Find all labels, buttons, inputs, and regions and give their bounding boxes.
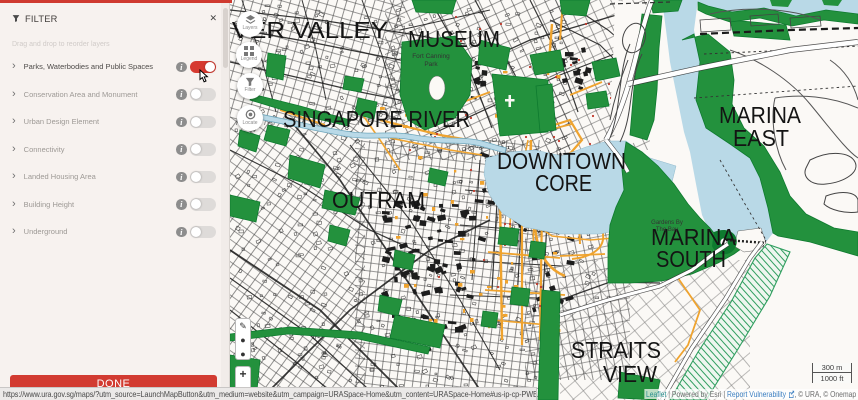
svg-text:Park: Park xyxy=(424,61,438,68)
svg-text:EAST: EAST xyxy=(733,125,789,151)
svg-text:Gardens By: Gardens By xyxy=(651,220,683,226)
svg-text:SINGAPORE RIVER: SINGAPORE RIVER xyxy=(283,106,470,132)
svg-text:Fort Canning: Fort Canning xyxy=(412,53,450,60)
svg-text:STRAITS: STRAITS xyxy=(571,337,661,363)
svg-text:VIEW: VIEW xyxy=(603,361,657,387)
svg-text:The Bay: The Bay xyxy=(656,227,678,233)
svg-text:SOUTH: SOUTH xyxy=(656,246,726,272)
svg-text:CORE: CORE xyxy=(535,170,592,196)
svg-text:OUTRAM: OUTRAM xyxy=(332,187,425,213)
svg-text:MUSEUM: MUSEUM xyxy=(408,26,500,52)
